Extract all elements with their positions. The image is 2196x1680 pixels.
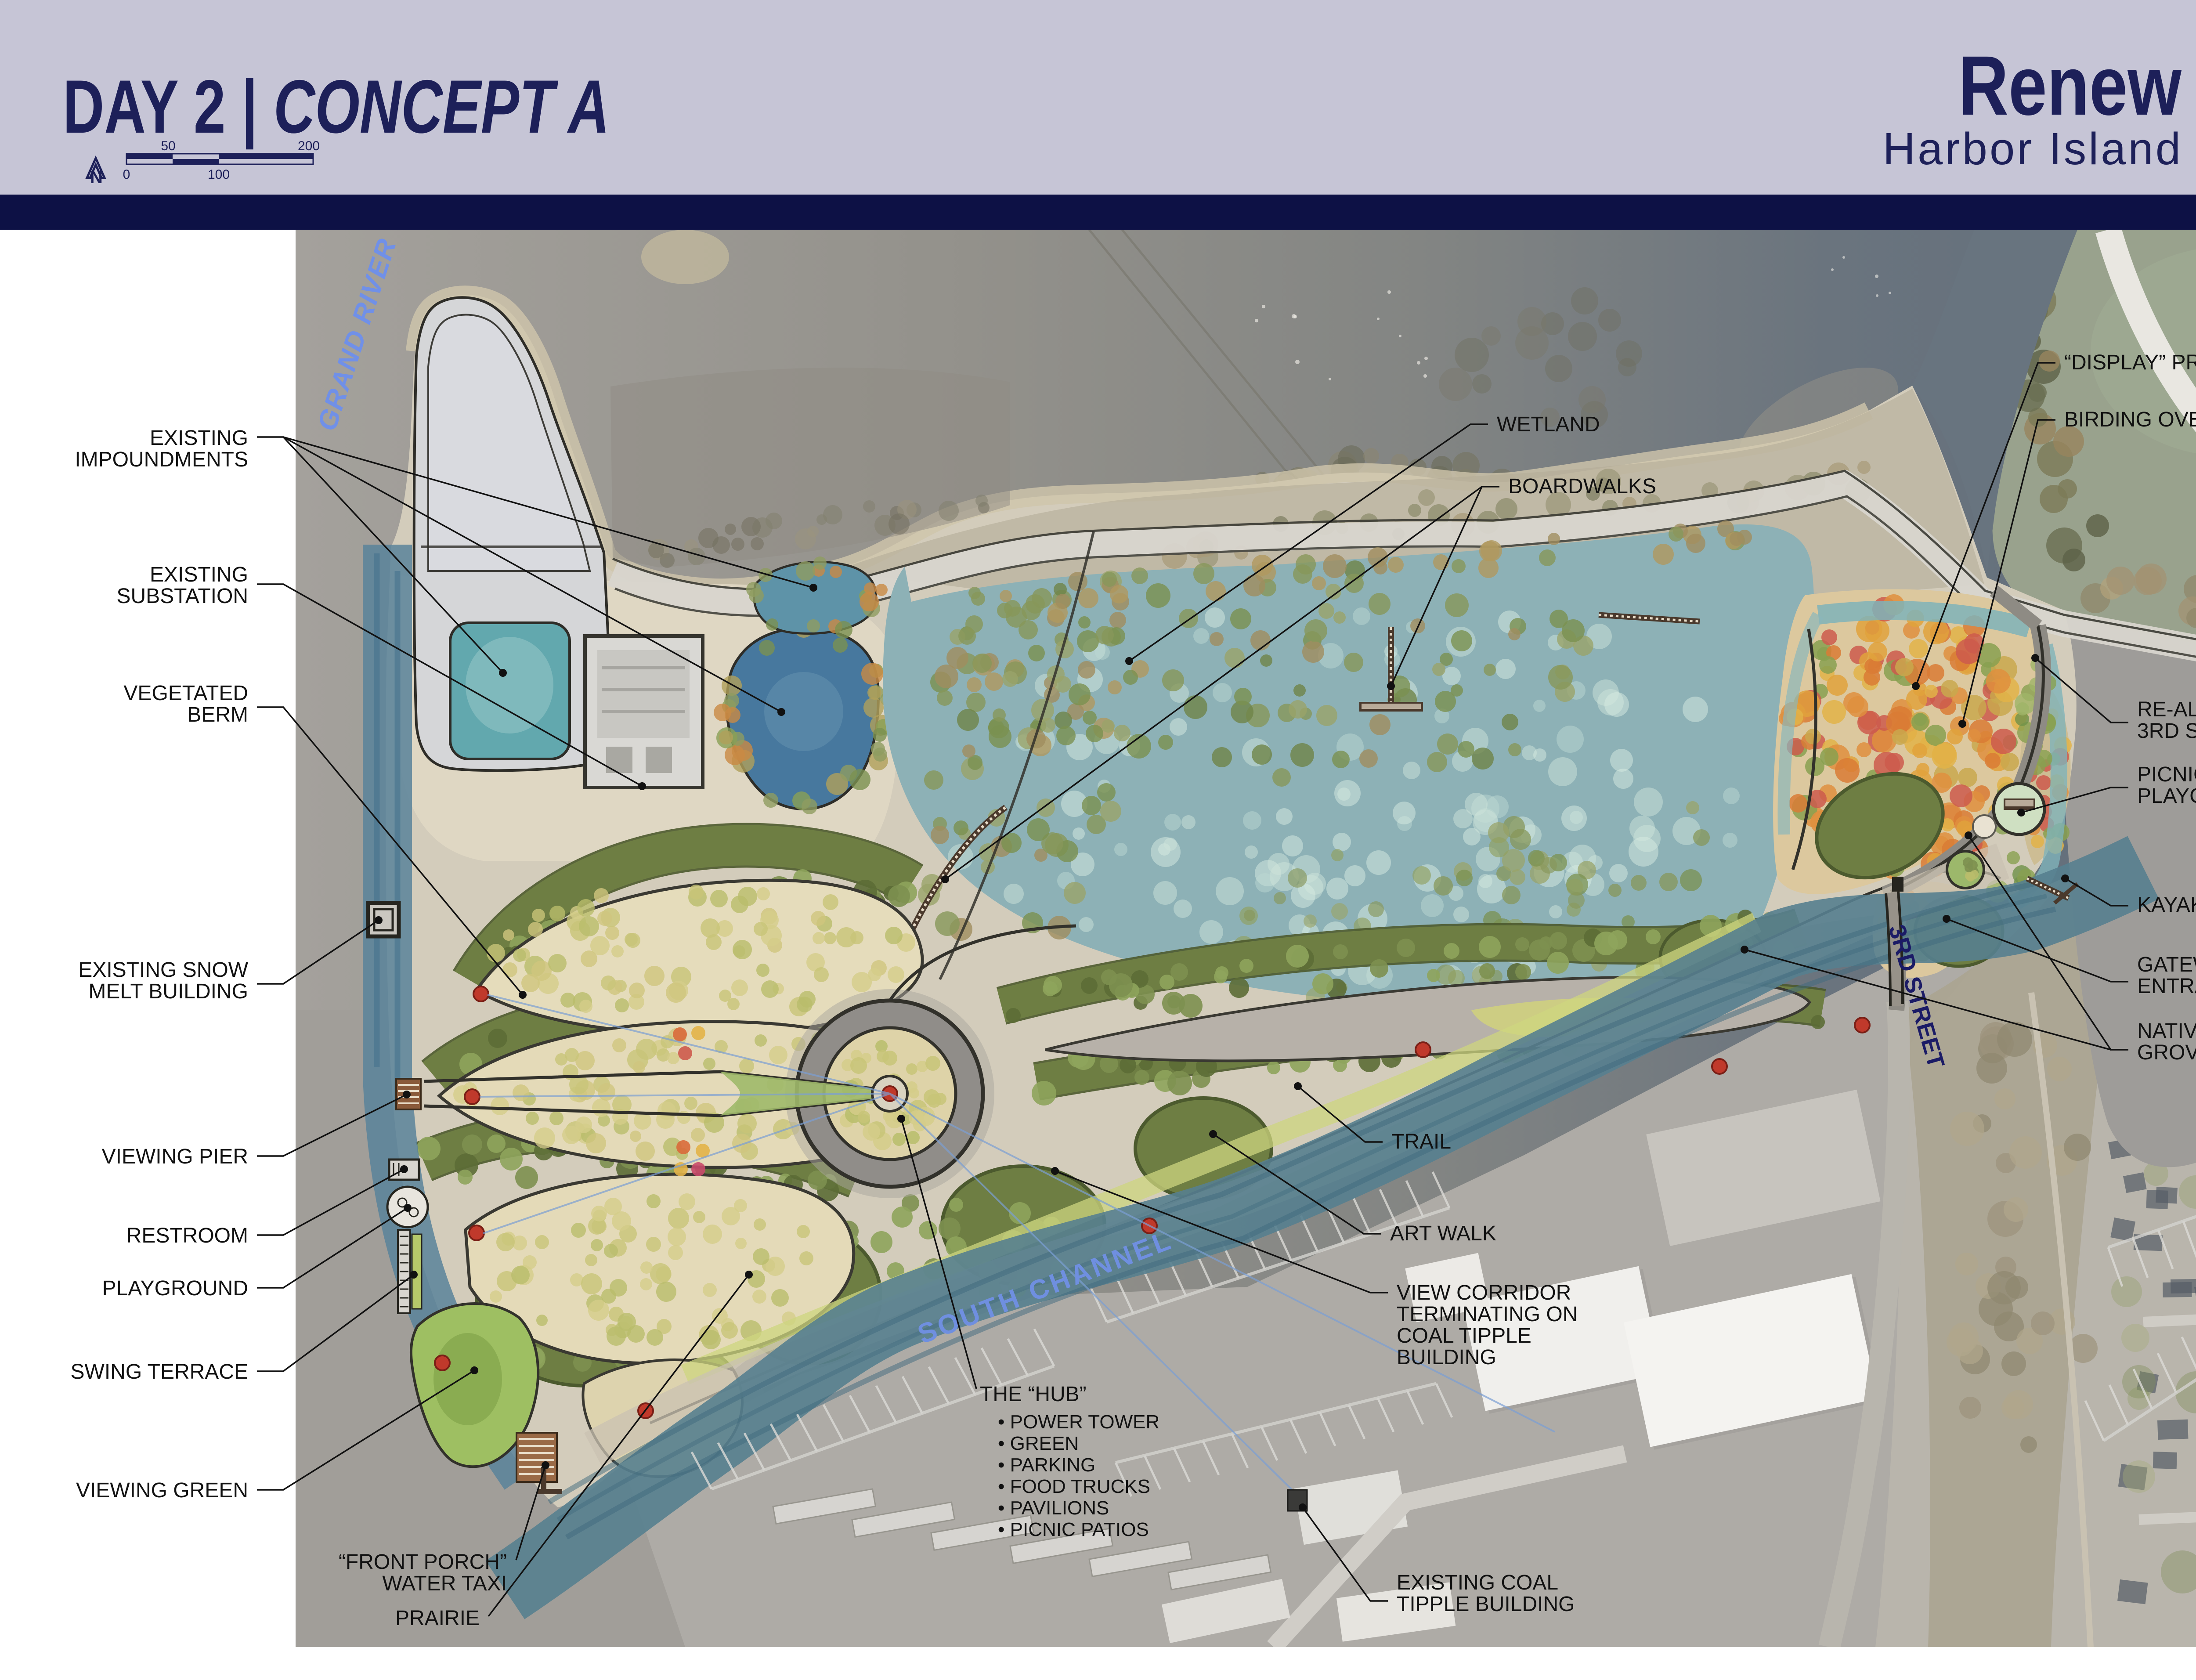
- svg-text:“FRONT PORCH”: “FRONT PORCH”: [339, 1550, 507, 1574]
- svg-text:• POWER TOWER: • POWER TOWER: [998, 1411, 1159, 1433]
- svg-text:SOUTH CHANNEL: SOUTH CHANNEL: [914, 1225, 1177, 1350]
- svg-text:“DISPLAY” PRAIRIE: “DISPLAY” PRAIRIE: [2064, 351, 2196, 374]
- svg-text:• FOOD TRUCKS: • FOOD TRUCKS: [998, 1476, 1150, 1497]
- svg-text:WETLAND: WETLAND: [1497, 413, 1600, 436]
- svg-text:MELT BUILDING: MELT BUILDING: [88, 980, 248, 1003]
- svg-text:BOARDWALKS: BOARDWALKS: [1508, 475, 1656, 498]
- svg-text:THE “HUB”: THE “HUB”: [980, 1383, 1087, 1406]
- svg-text:• PAVILIONS: • PAVILIONS: [998, 1497, 1109, 1519]
- svg-text:KAYAK LAUNCH: KAYAK LAUNCH: [2137, 893, 2196, 917]
- svg-text:BUILDING: BUILDING: [1397, 1346, 1496, 1369]
- svg-text:SUBSTATION: SUBSTATION: [116, 585, 248, 608]
- svg-text:TERMINATING ON: TERMINATING ON: [1397, 1303, 1578, 1326]
- svg-text:BIRDING OVERLOOK: BIRDING OVERLOOK: [2064, 408, 2196, 431]
- svg-text:RE-ALIGNED: RE-ALIGNED: [2137, 698, 2196, 721]
- svg-text:RESTROOM: RESTROOM: [126, 1224, 248, 1247]
- svg-text:EXISTING: EXISTING: [150, 426, 248, 450]
- svg-text:BERM: BERM: [187, 703, 248, 726]
- svg-text:N: N: [90, 168, 103, 187]
- svg-text:• GREEN: • GREEN: [998, 1433, 1079, 1454]
- svg-text:GROVES: GROVES: [2137, 1041, 2196, 1064]
- svg-text:100: 100: [208, 167, 230, 182]
- svg-text:VIEWING GREEN: VIEWING GREEN: [76, 1479, 248, 1502]
- svg-text:EXISTING: EXISTING: [150, 563, 248, 586]
- svg-text:• PARKING: • PARKING: [998, 1454, 1095, 1476]
- svg-text:VEGETATED: VEGETATED: [123, 682, 248, 705]
- svg-text:200: 200: [298, 139, 320, 153]
- svg-text:GRAND RIVER: GRAND RIVER: [312, 235, 403, 434]
- svg-text:WATER TAXI: WATER TAXI: [382, 1572, 507, 1595]
- svg-text:PLAYGROUND: PLAYGROUND: [102, 1277, 248, 1300]
- svg-text:TRAIL: TRAIL: [1391, 1130, 1451, 1153]
- svg-text:• PICNIC PATIOS: • PICNIC PATIOS: [998, 1519, 1149, 1540]
- svg-text:SWING TERRACE: SWING TERRACE: [71, 1360, 248, 1384]
- svg-text:GATEWAY /: GATEWAY /: [2137, 953, 2196, 976]
- svg-text:EXISTING COAL: EXISTING COAL: [1397, 1571, 1558, 1594]
- svg-text:NATIVE TREE: NATIVE TREE: [2137, 1019, 2196, 1043]
- svg-text:PLAYGROUND: PLAYGROUND: [2137, 784, 2196, 808]
- svg-text:ART WALK: ART WALK: [1390, 1222, 1496, 1245]
- svg-text:50: 50: [161, 139, 175, 153]
- svg-text:PICNIC SHELTER +: PICNIC SHELTER +: [2137, 763, 2196, 786]
- svg-text:ENTRANCE SIGN: ENTRANCE SIGN: [2137, 975, 2196, 998]
- svg-text:0: 0: [123, 167, 130, 182]
- svg-text:IMPOUNDMENTS: IMPOUNDMENTS: [75, 448, 248, 471]
- svg-text:PRAIRIE: PRAIRIE: [395, 1607, 480, 1630]
- svg-text:VIEW CORRIDOR: VIEW CORRIDOR: [1397, 1281, 1571, 1304]
- svg-text:COAL TIPPLE: COAL TIPPLE: [1397, 1324, 1531, 1348]
- svg-text:VIEWING PIER: VIEWING PIER: [102, 1145, 248, 1168]
- svg-text:TIPPLE BUILDING: TIPPLE BUILDING: [1397, 1593, 1575, 1616]
- svg-text:EXISTING SNOW: EXISTING SNOW: [78, 958, 248, 982]
- svg-text:3RD STREET: 3RD STREET: [2137, 719, 2196, 743]
